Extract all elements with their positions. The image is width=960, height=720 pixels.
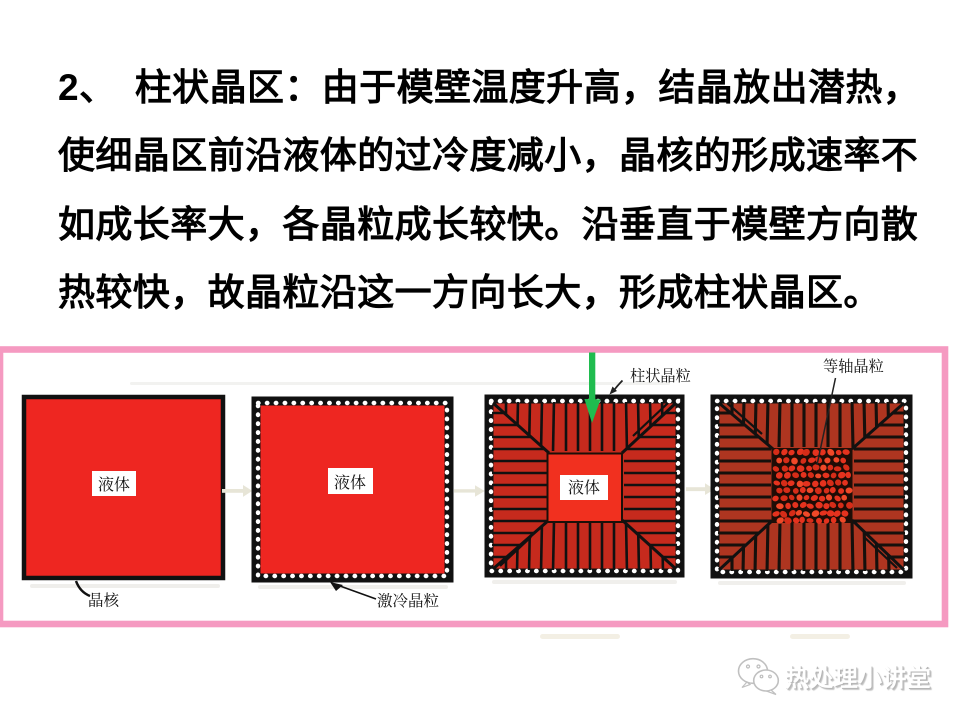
svg-text:柱状晶粒: 柱状晶粒 — [630, 368, 691, 385]
svg-text:晶核: 晶核 — [88, 592, 120, 610]
svg-text:液体: 液体 — [568, 479, 600, 497]
svg-text:液体: 液体 — [334, 474, 366, 492]
svg-text:激冷晶粒: 激冷晶粒 — [377, 592, 440, 610]
svg-text:等轴晶粒: 等轴晶粒 — [823, 359, 884, 376]
svg-text:液体: 液体 — [98, 476, 130, 494]
